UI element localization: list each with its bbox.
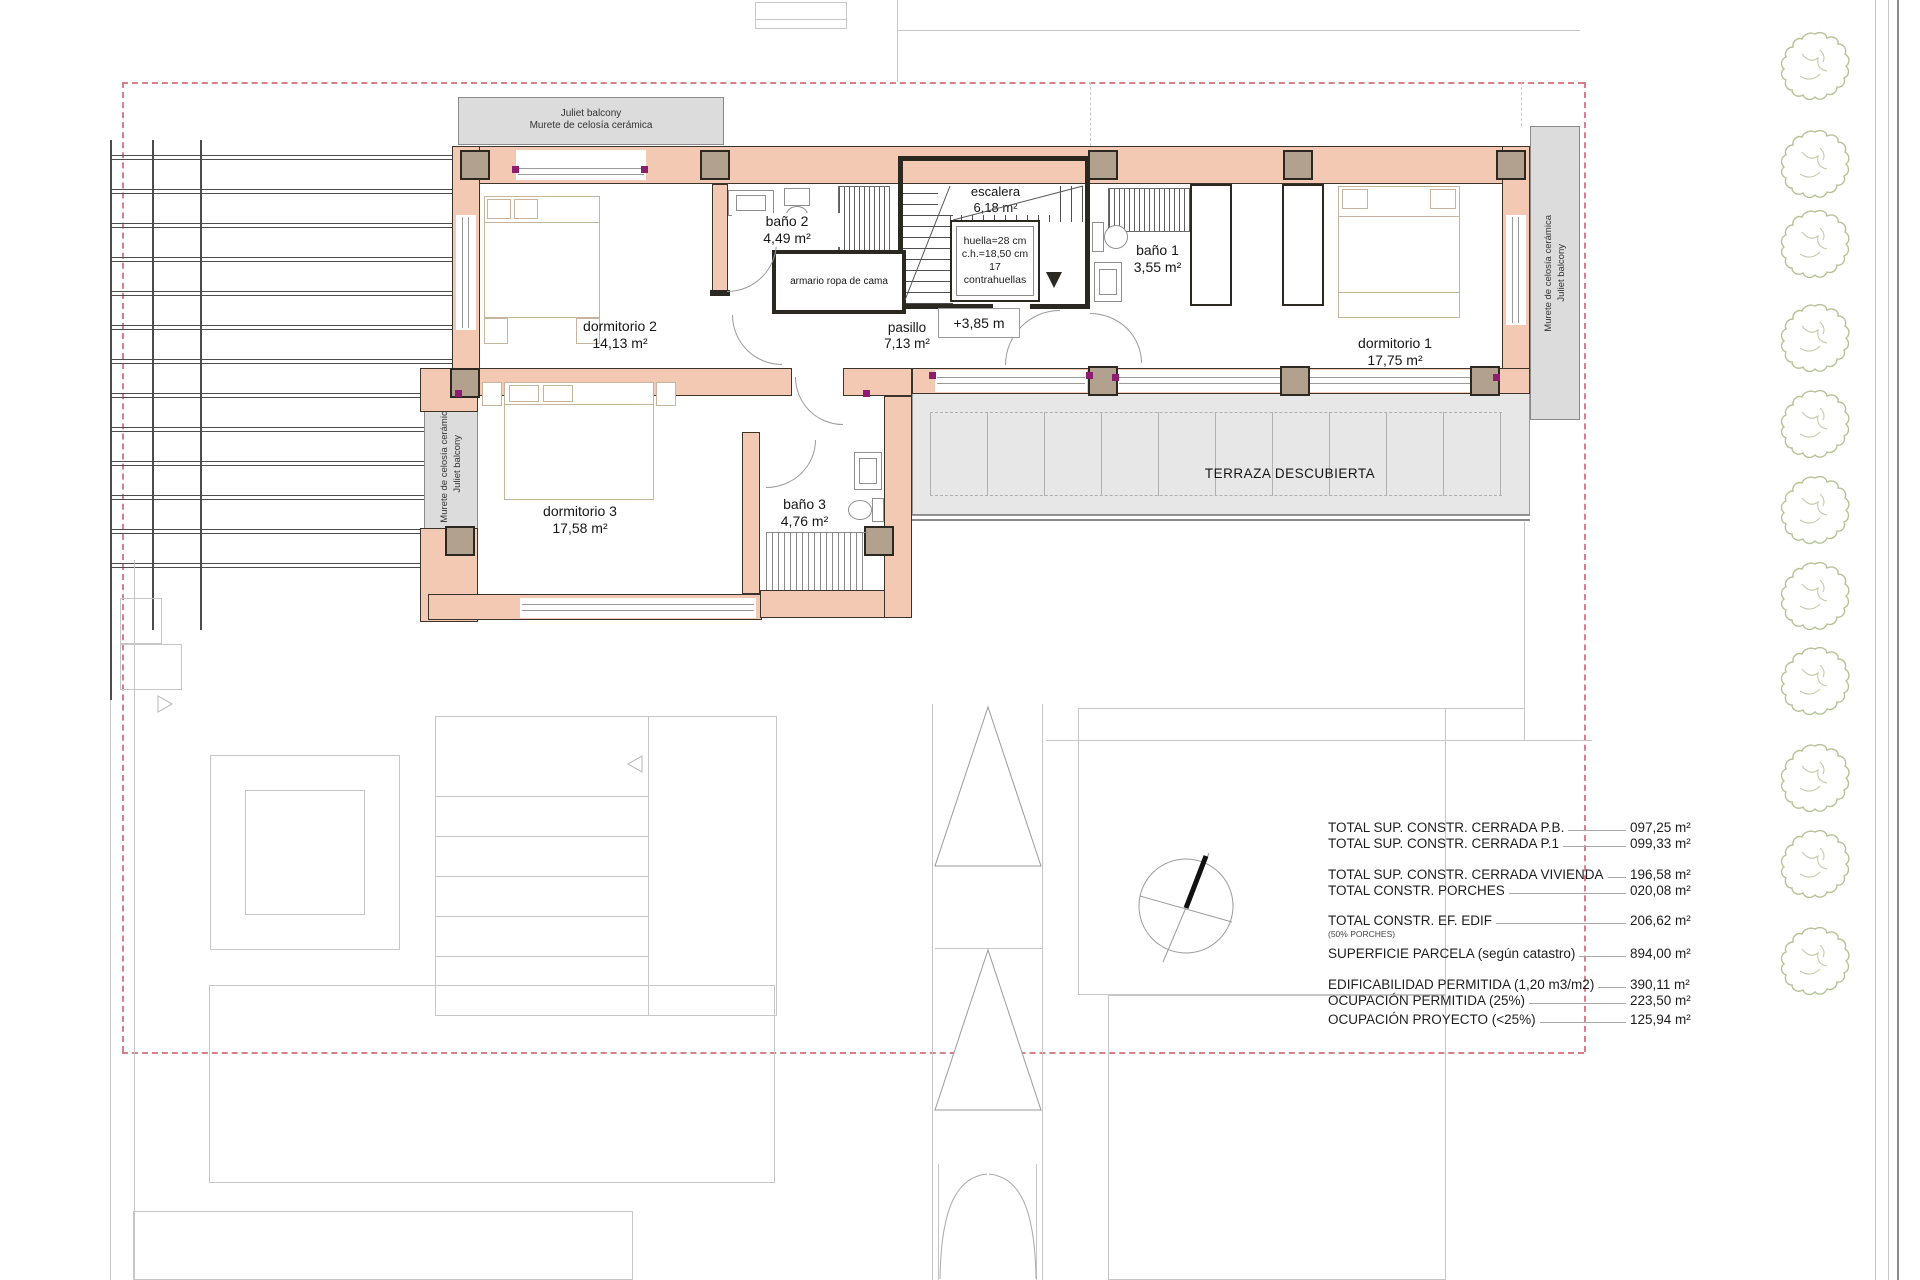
shower-hatch [766,532,868,590]
room-area: 7,13 m² [852,336,962,352]
level-marker: +3,85 m [938,308,1020,338]
balcony-label-line: Murete de celosía cerámica [1543,215,1554,332]
balcony-label-line: Juliet balcony [452,435,463,493]
column-block [1496,150,1526,180]
roof-outline [897,30,1580,31]
table-label: TOTAL CONSTR. EF. EDIF [1328,913,1492,928]
terrace-tiles [930,412,1502,496]
column-block [700,150,730,180]
window [1512,217,1519,323]
stair-tread [435,876,648,877]
table-label: TOTAL CONSTR. PORCHES [1328,883,1505,898]
stair-note-line: 17 contrahuellas [957,261,1033,287]
stair-wall [898,156,1090,161]
gate-frame [1036,1164,1037,1280]
pillow [543,385,573,402]
table-label: OCUPACIÓN PROYECTO (<25%) [1328,1012,1536,1027]
pergola-louvre [110,223,452,228]
table-row: OCUPACIÓN PROYECTO (<25%) 125,94 m² [1328,1012,1704,1027]
table-row: TOTAL SUP. CONSTR. CERRADA P.B. 097,25 m… [1328,820,1704,835]
site-line [648,716,649,1016]
column-block [1280,366,1310,396]
column-block [1470,366,1500,396]
table-value: 894,00 m² [1630,946,1704,961]
pergola-louvre [110,427,452,432]
room-label-dormitorio-2: dormitorio 2 14,13 m² [520,318,720,352]
balcony-label-line: Juliet balcony [1556,244,1567,302]
window [518,168,644,175]
stair-wall [1085,156,1090,309]
junction-marker [863,390,870,397]
pergola-louvre [110,563,452,568]
floor-plan-sheet: Juliet balcony Murete de celosía cerámic… [0,0,1920,1280]
sink-basin [859,458,877,484]
junction-marker [1112,374,1119,381]
room-label-dormitorio-3: dormitorio 3 17,58 m² [480,503,680,537]
wall-segment [712,184,728,294]
tree-icon [1782,563,1849,630]
table-label: TOTAL SUP. CONSTR. CERRADA VIVIENDA [1328,867,1604,882]
room-label-dormitorio-1: dormitorio 1 17,75 m² [1295,335,1495,369]
pergola-louvre [110,291,452,296]
window [462,217,469,328]
table-row: TOTAL SUP. CONSTR. CERRADA P.1 099,33 m² [1328,836,1704,851]
pillow [487,199,511,219]
nightstand [482,382,502,406]
stair-wall [1030,304,1090,309]
toilet-tank [872,498,884,522]
table-row: TOTAL SUP. CONSTR. CERRADA VIVIENDA 196,… [1328,867,1704,882]
junction-marker [455,390,462,397]
site-line [1524,522,1525,741]
pergola-louvre [110,393,452,398]
partition-stub [1282,184,1324,306]
stair-note: huella=28 cm c.h.=18,50 cm 17 contrahuel… [956,226,1034,296]
room-name: escalera [938,184,1053,200]
tree-icon [1782,391,1849,458]
stair-direction-icon [1046,272,1062,288]
junction-marker [1493,374,1500,381]
table-value: 097,25 m² [1630,820,1704,835]
juliet-balcony-right: Murete de celosía cerámica Juliet balcon… [1530,126,1580,420]
room-label-bano-3: baño 3 4,76 m² [752,496,857,530]
site-structure [209,985,775,1183]
closet-hatch [838,186,890,252]
tree-icon [1782,745,1849,812]
tree-icon [1782,305,1849,372]
direction-arrow [935,950,1041,1110]
table-row: SUPERFICIE PARCELA (según catastro) 894,… [1328,946,1704,961]
bed-line [504,404,654,405]
site-structure [245,790,365,915]
window-opening [516,150,646,180]
lower-floor-stairs [435,716,777,1016]
table-label: SUPERFICIE PARCELA (según catastro) [1328,946,1575,961]
roof-outline [755,19,847,20]
room-name: baño 3 [752,496,857,513]
juliet-balcony-top: Juliet balcony Murete de celosía cerámic… [458,97,724,145]
junction-marker [1086,372,1093,379]
leader-line [1563,845,1626,847]
pergola-louvre [110,155,452,160]
stair-landing: huella=28 cm c.h.=18,50 cm 17 contrahuel… [950,220,1040,302]
gate-leaf [940,1174,987,1279]
junction-marker [512,166,519,173]
column-block [1088,150,1118,180]
leader-line [1509,892,1626,894]
toilet-tank [784,188,810,206]
sheet-border-line [1897,0,1899,1280]
nightstand [656,382,676,406]
direction-arrow [935,707,1041,866]
pergola-louvre [110,495,452,500]
stair-tread [435,916,648,917]
balcony-label: Juliet balcony Murete de celosía cerámic… [459,108,723,132]
column-block [1283,150,1313,180]
stair-tread [435,836,648,837]
pergola-louvre [110,325,452,330]
table-subnote: (50% PORCHES) [1328,929,1395,939]
table-label: TOTAL SUP. CONSTR. CERRADA P.1 [1328,836,1559,851]
pillow [1342,189,1368,209]
sheet-border-line [1875,0,1876,1280]
room-area: 17,75 m² [1295,352,1495,369]
column-block [1088,366,1118,396]
site-structure [133,1211,633,1280]
door-arc [1090,313,1142,363]
room-name: baño 1 [1100,242,1215,259]
pillow [509,385,539,402]
wall-segment [884,396,912,618]
stair-label: escalera 6,18 m² [938,184,1053,215]
gate-frame [938,1164,939,1280]
table-value: 206,62 m² [1630,913,1704,928]
tree-icon [1782,33,1849,100]
roof-outline [897,0,898,82]
tree-icon [1782,211,1849,278]
room-area: 4,49 m² [732,230,842,247]
room-label-bano-1: baño 1 3,55 m² [1100,242,1215,276]
door-arc [732,315,782,365]
room-area: 4,76 m² [752,513,857,530]
bed-line [484,222,600,223]
setback-line [1521,82,1522,126]
nightstand [484,318,508,344]
window [937,377,1085,384]
table-row: EDIFICABILIDAD PERMITIDA (1,20 m3/m2) 39… [1328,977,1704,992]
plot-boundary-top [122,82,1584,84]
sink-basin [736,195,766,211]
stair-note-line: c.h.=18,50 cm [957,248,1033,261]
neighbor-plot [1108,995,1446,1280]
stair-tread [435,796,648,797]
junction-marker [929,372,936,379]
site-arrow-icon [158,696,172,712]
junction-marker [641,166,648,173]
driveway-line [935,948,1042,949]
bed-line [1338,292,1460,293]
pergola-louvre [110,189,452,194]
site-structure [120,598,162,644]
leader-line [1496,922,1626,924]
leader-line [1540,1021,1626,1023]
juliet-balcony-left: Murete de celosía cerámica Juliet balcon… [424,398,478,530]
room-name: dormitorio 1 [1295,335,1495,352]
tree-icon [1782,131,1849,198]
plot-boundary-right [1584,82,1586,1052]
pillow [1430,189,1456,209]
balcony-label-line: Murete de celosía cerámica [439,406,450,523]
setback-line [1090,82,1091,146]
pergola-louvre [110,359,452,364]
leader-line [1529,1002,1626,1004]
column-block [460,150,490,180]
table-label: EDIFICABILIDAD PERMITIDA (1,20 m3/m2) [1328,977,1594,992]
door-arc [766,440,816,488]
table-row: TOTAL CONSTR. PORCHES 020,08 m² [1328,883,1704,898]
table-label: OCUPACIÓN PERMITIDA (25%) [1328,993,1525,1008]
table-row: OCUPACIÓN PERMITIDA (25%) 223,50 m² [1328,993,1704,1008]
site-structure [120,644,182,690]
site-line [110,700,111,1280]
pergola-beam [152,140,154,630]
sheet-border-line [1888,0,1889,1280]
balcony-label-line: Juliet balcony [459,108,723,120]
bed-line [1338,216,1460,217]
pergola-louvre [110,461,452,466]
room-area: 14,13 m² [520,335,720,352]
tree-icon [1782,831,1849,898]
table-row: TOTAL CONSTR. EF. EDIF 206,62 m² [1328,913,1704,928]
stair-note-line: huella=28 cm [957,235,1033,248]
balcony-label-line: Murete de celosía cerámica [459,120,723,132]
room-area: 17,58 m² [480,520,680,537]
table-value: 390,11 m² [1630,977,1704,992]
table-value: 223,50 m² [1630,993,1704,1008]
room-area: 6,18 m² [938,200,1053,216]
column-block [864,526,894,556]
stair-tread [435,956,648,957]
leader-line [1568,829,1626,831]
room-name: dormitorio 3 [480,503,680,520]
linen-closet: armario ropa de cama [772,250,906,314]
room-name: dormitorio 2 [520,318,720,335]
room-area: 3,55 m² [1100,259,1215,276]
table-value: 099,33 m² [1630,836,1704,851]
window [522,604,754,611]
roof-outline [755,2,847,29]
leader-line [1579,955,1626,957]
table-value: 020,08 m² [1630,883,1704,898]
pergola-beam [200,140,202,630]
pergola-louvre [110,529,452,534]
table-value: 125,94 m² [1630,1012,1704,1027]
door-arc [795,377,843,425]
room-name: baño 2 [732,213,842,230]
driveway-edge [932,704,933,1280]
closet-label: armario ropa de cama [776,276,902,288]
wall-segment [843,368,912,396]
pillow [514,199,538,219]
table-value: 196,58 m² [1630,867,1704,882]
driveway-edge [1042,704,1043,1280]
gate-leaf [989,1174,1036,1279]
column-block [445,526,475,556]
leader-line [1598,986,1626,988]
terrace-edge [912,514,1530,521]
tree-icon [1782,477,1849,544]
table-label: TOTAL SUP. CONSTR. CERRADA P.B. [1328,820,1564,835]
pergola-beam [110,140,112,700]
pergola-louvre [110,257,452,262]
door-arc [727,242,777,292]
tree-icon [1782,648,1849,715]
leader-line [1608,876,1626,878]
tree-icon [1782,928,1849,995]
terrace-label: TERRAZA DESCUBIERTA [1140,466,1440,482]
room-label-bano-2: baño 2 4,49 m² [732,213,842,247]
